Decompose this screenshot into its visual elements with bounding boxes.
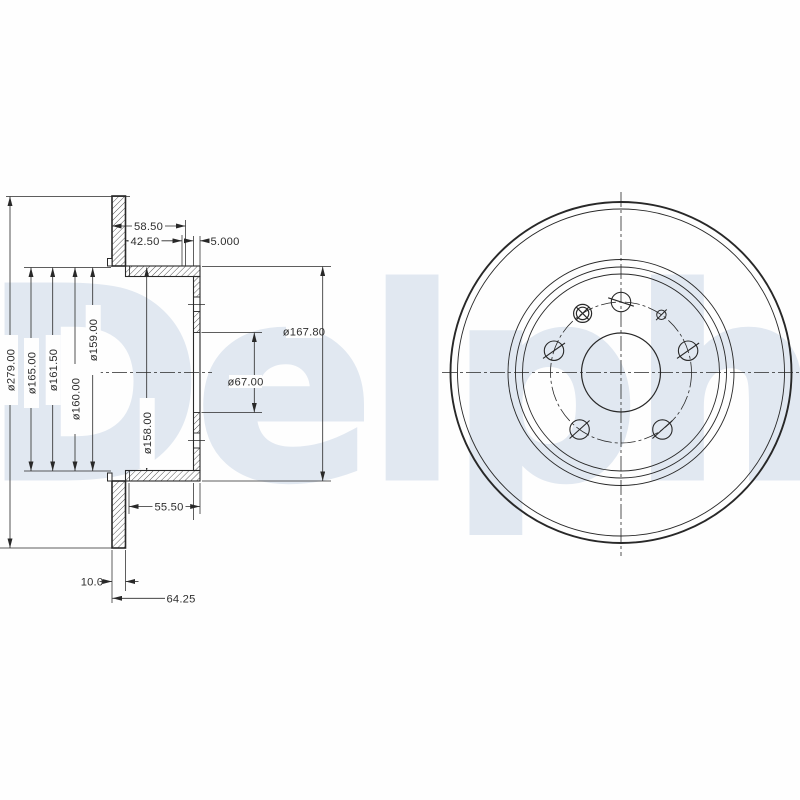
section-hat-flange-top xyxy=(126,266,201,277)
front-view xyxy=(442,192,799,556)
dim-label-67: ø67.00 xyxy=(227,377,263,389)
dim-label-158: ø158.00 xyxy=(142,412,154,454)
dim-label-160: ø160.00 xyxy=(71,378,83,420)
dim-label-167-8: ø167.80 xyxy=(283,327,325,339)
bolt-hole-lower-right xyxy=(652,420,672,439)
bolt-hole-left xyxy=(543,341,565,360)
bolt-hole-lower-left xyxy=(570,420,590,439)
locating-pin-hole xyxy=(656,310,667,321)
section-disc-band-top xyxy=(112,196,126,266)
dim-label-159: ø159.00 xyxy=(88,319,100,361)
section-disc-band-bottom xyxy=(112,481,126,548)
dim-label-64-25: 64.25 xyxy=(167,593,196,605)
dim-label-55-5: 55.50 xyxy=(155,502,184,514)
section-hat-flange-bottom xyxy=(126,471,201,482)
dim-label-165: ø165.00 xyxy=(27,352,39,394)
section-pad-nub-top xyxy=(108,259,113,267)
dim-label-279: ø279.00 xyxy=(6,349,18,391)
dim-label-10: 10.0 xyxy=(81,577,104,589)
technical-drawing: ø279.00 ø165.00 ø161.50 ø160.00 ø159.00 … xyxy=(0,0,800,800)
dim-label-42-5: 42.50 xyxy=(131,236,160,248)
dim-label-161-5: ø161.50 xyxy=(48,349,60,391)
threaded-hole xyxy=(574,304,592,322)
dim-label-5: 5.000 xyxy=(211,236,240,248)
drawing-canvas: Delphi xyxy=(0,0,800,800)
bolt-hole-right xyxy=(677,341,699,360)
section-pad-nub-bottom xyxy=(108,473,113,481)
dim-label-58-5: 58.50 xyxy=(134,221,163,233)
section-view: ø279.00 ø165.00 ø161.50 ø160.00 ø159.00 … xyxy=(0,196,331,605)
section-hub-wall xyxy=(188,277,205,471)
